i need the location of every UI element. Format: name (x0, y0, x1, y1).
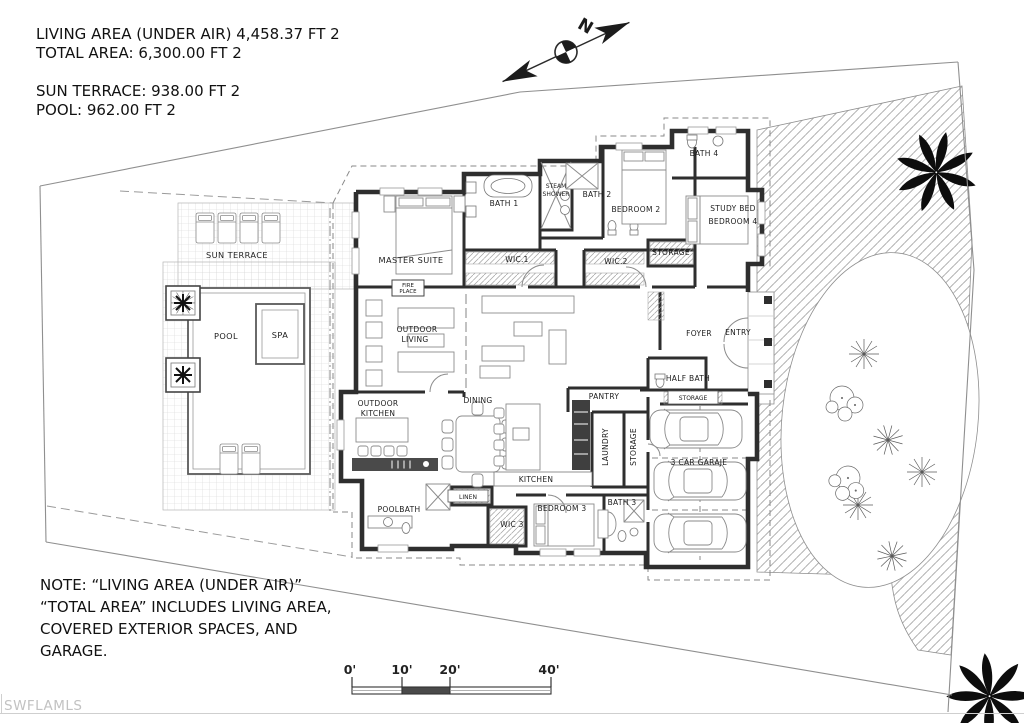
label-outdoor-living: OUTDOOR (397, 325, 438, 334)
label-garage: 3 CAR GARAJE (671, 458, 728, 467)
label-steam-shower: STEAM (546, 183, 567, 190)
label-pool: POOL (214, 331, 238, 341)
label-spa: SPA (272, 330, 288, 340)
living-area-text: LIVING AREA (UNDER AIR) 4,458.37 FT 2 (36, 25, 340, 43)
porch-column (764, 296, 772, 304)
porch-column (764, 338, 772, 346)
lounge-chair (240, 213, 258, 243)
note-line: GARAGE. (40, 642, 108, 660)
lounge-chair (220, 444, 238, 474)
label-bedroom-4: BEDROOM 4 (708, 217, 757, 226)
planter (166, 286, 200, 320)
label-master-suite: MASTER SUITE (379, 255, 444, 265)
lounge-chair (242, 444, 260, 474)
label-bath-2: BATH 2 (583, 190, 612, 199)
scale-tick-40: 40' (538, 662, 559, 677)
label-bedroom-3: BEDROOM 3 (537, 504, 586, 513)
lounge-chair (196, 213, 214, 243)
label-bath-3: BATH 3 (608, 498, 637, 507)
label-study-bed: STUDY BED (710, 204, 756, 213)
entry-porch (748, 292, 774, 394)
label-pantry: PANTRY (589, 392, 620, 401)
label-outdoor-living: LIVING (402, 335, 429, 344)
sun-terrace-area-text: SUN TERRACE: 938.00 FT 2 (36, 82, 240, 100)
label-half-bath: HALF BATH (666, 374, 710, 383)
label-storage-garage: STORAGE (629, 428, 638, 466)
label-wic-2: WIC.2 (604, 257, 628, 266)
label-wic-3: WIC 3 (500, 520, 524, 529)
scale-tick-10: 10' (391, 662, 412, 677)
car-icon (654, 513, 746, 553)
label-linen: LINEN (459, 494, 477, 501)
label-dining: DINING (463, 396, 492, 405)
lounge-chair (262, 213, 280, 243)
label-bath-4: BATH 4 (690, 149, 719, 158)
label-wic-1: WIC.1 (505, 255, 529, 264)
label-outdoor-kitchen: KITCHEN (361, 409, 396, 418)
palm-tree-icon (941, 647, 1024, 723)
floorplan-image: MASTER SUITE BATH 1 STEAM SHOWER BATH 2 … (0, 0, 1024, 723)
label-storage-entry: STORAGE (679, 395, 708, 402)
north-label: N (574, 14, 596, 38)
lounge-chair (218, 213, 236, 243)
compass-arrowhead (594, 13, 632, 44)
scale-bar: 0' 10' 20' 40' (344, 662, 560, 694)
label-bedroom-2: BEDROOM 2 (611, 205, 660, 214)
note-line: NOTE: “LIVING AREA (UNDER AIR)” (40, 576, 302, 594)
label-laundry: LAUNDRY (601, 428, 610, 466)
floorplan-svg: MASTER SUITE BATH 1 STEAM SHOWER BATH 2 … (0, 0, 1024, 723)
total-area-text: TOTAL AREA: 6,300.00 FT 2 (35, 44, 242, 62)
title-block: LIVING AREA (UNDER AIR) 4,458.37 FT 2 TO… (35, 25, 340, 119)
north-arrow: N (491, 0, 634, 92)
label-bath-1: BATH 1 (490, 199, 519, 208)
scale-tick-0: 0' (344, 662, 357, 677)
porch-column (764, 380, 772, 388)
note-line: COVERED EXTERIOR SPACES, AND (40, 620, 298, 638)
planter (166, 358, 200, 392)
compass-arrowhead (499, 60, 537, 91)
car-icon (654, 461, 746, 501)
label-foyer: FOYER (686, 329, 712, 338)
car-icon (650, 409, 742, 449)
kitchen-appliance-wall (572, 400, 590, 470)
driveway-paving (757, 86, 995, 655)
label-outdoor-kitchen: OUTDOOR (358, 399, 399, 408)
label-poolbath: POOLBATH (378, 505, 421, 514)
label-steam-shower: SHOWER (543, 191, 570, 198)
note-line: “TOTAL AREA” INCLUDES LIVING AREA, (40, 598, 332, 616)
label-entry: ENTRY (725, 328, 751, 337)
label-storage-upper: STORAGE (652, 248, 690, 257)
note-block: NOTE: “LIVING AREA (UNDER AIR)” “TOTAL A… (40, 576, 332, 660)
label-fireplace: PLACE (399, 289, 417, 295)
label-sun-terrace: SUN TERRACE (206, 250, 268, 260)
scale-tick-20: 20' (439, 662, 460, 677)
label-kitchen: KITCHEN (519, 475, 554, 484)
watermark: SWFLAMLS (4, 698, 83, 714)
pool-area-text: POOL: 962.00 FT 2 (36, 101, 176, 119)
